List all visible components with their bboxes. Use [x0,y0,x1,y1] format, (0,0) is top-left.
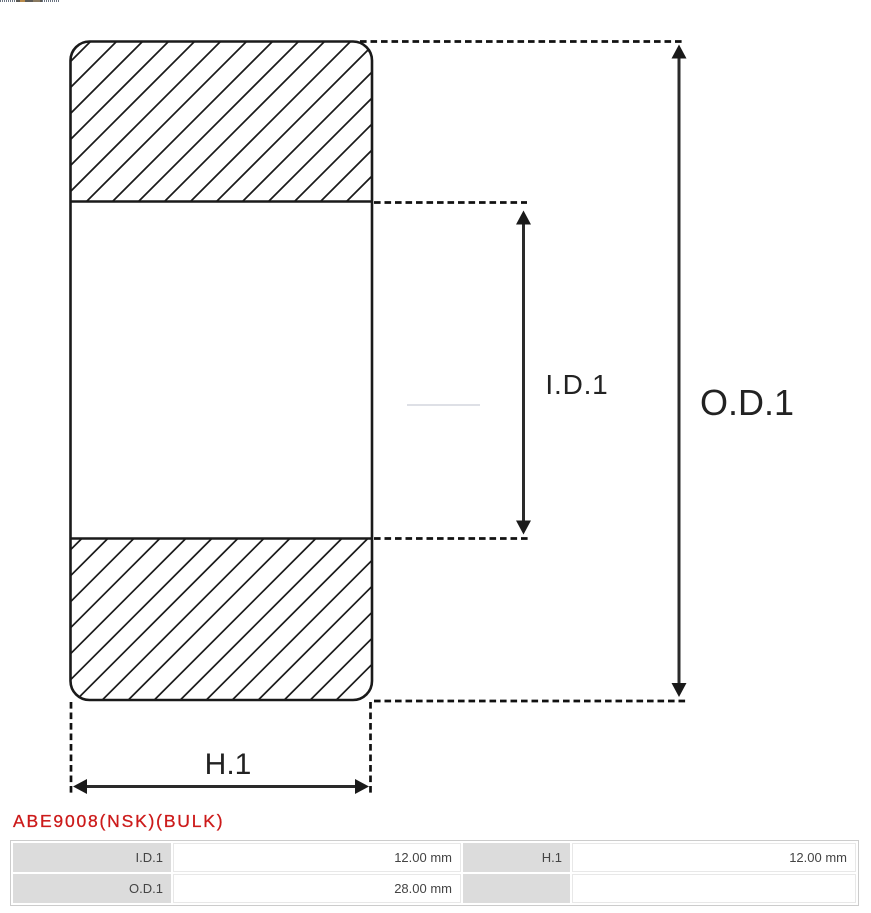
svg-text:I.D.1: I.D.1 [545,369,608,400]
svg-text:H.1: H.1 [205,748,252,781]
svg-text:O.D.1: O.D.1 [700,382,794,423]
